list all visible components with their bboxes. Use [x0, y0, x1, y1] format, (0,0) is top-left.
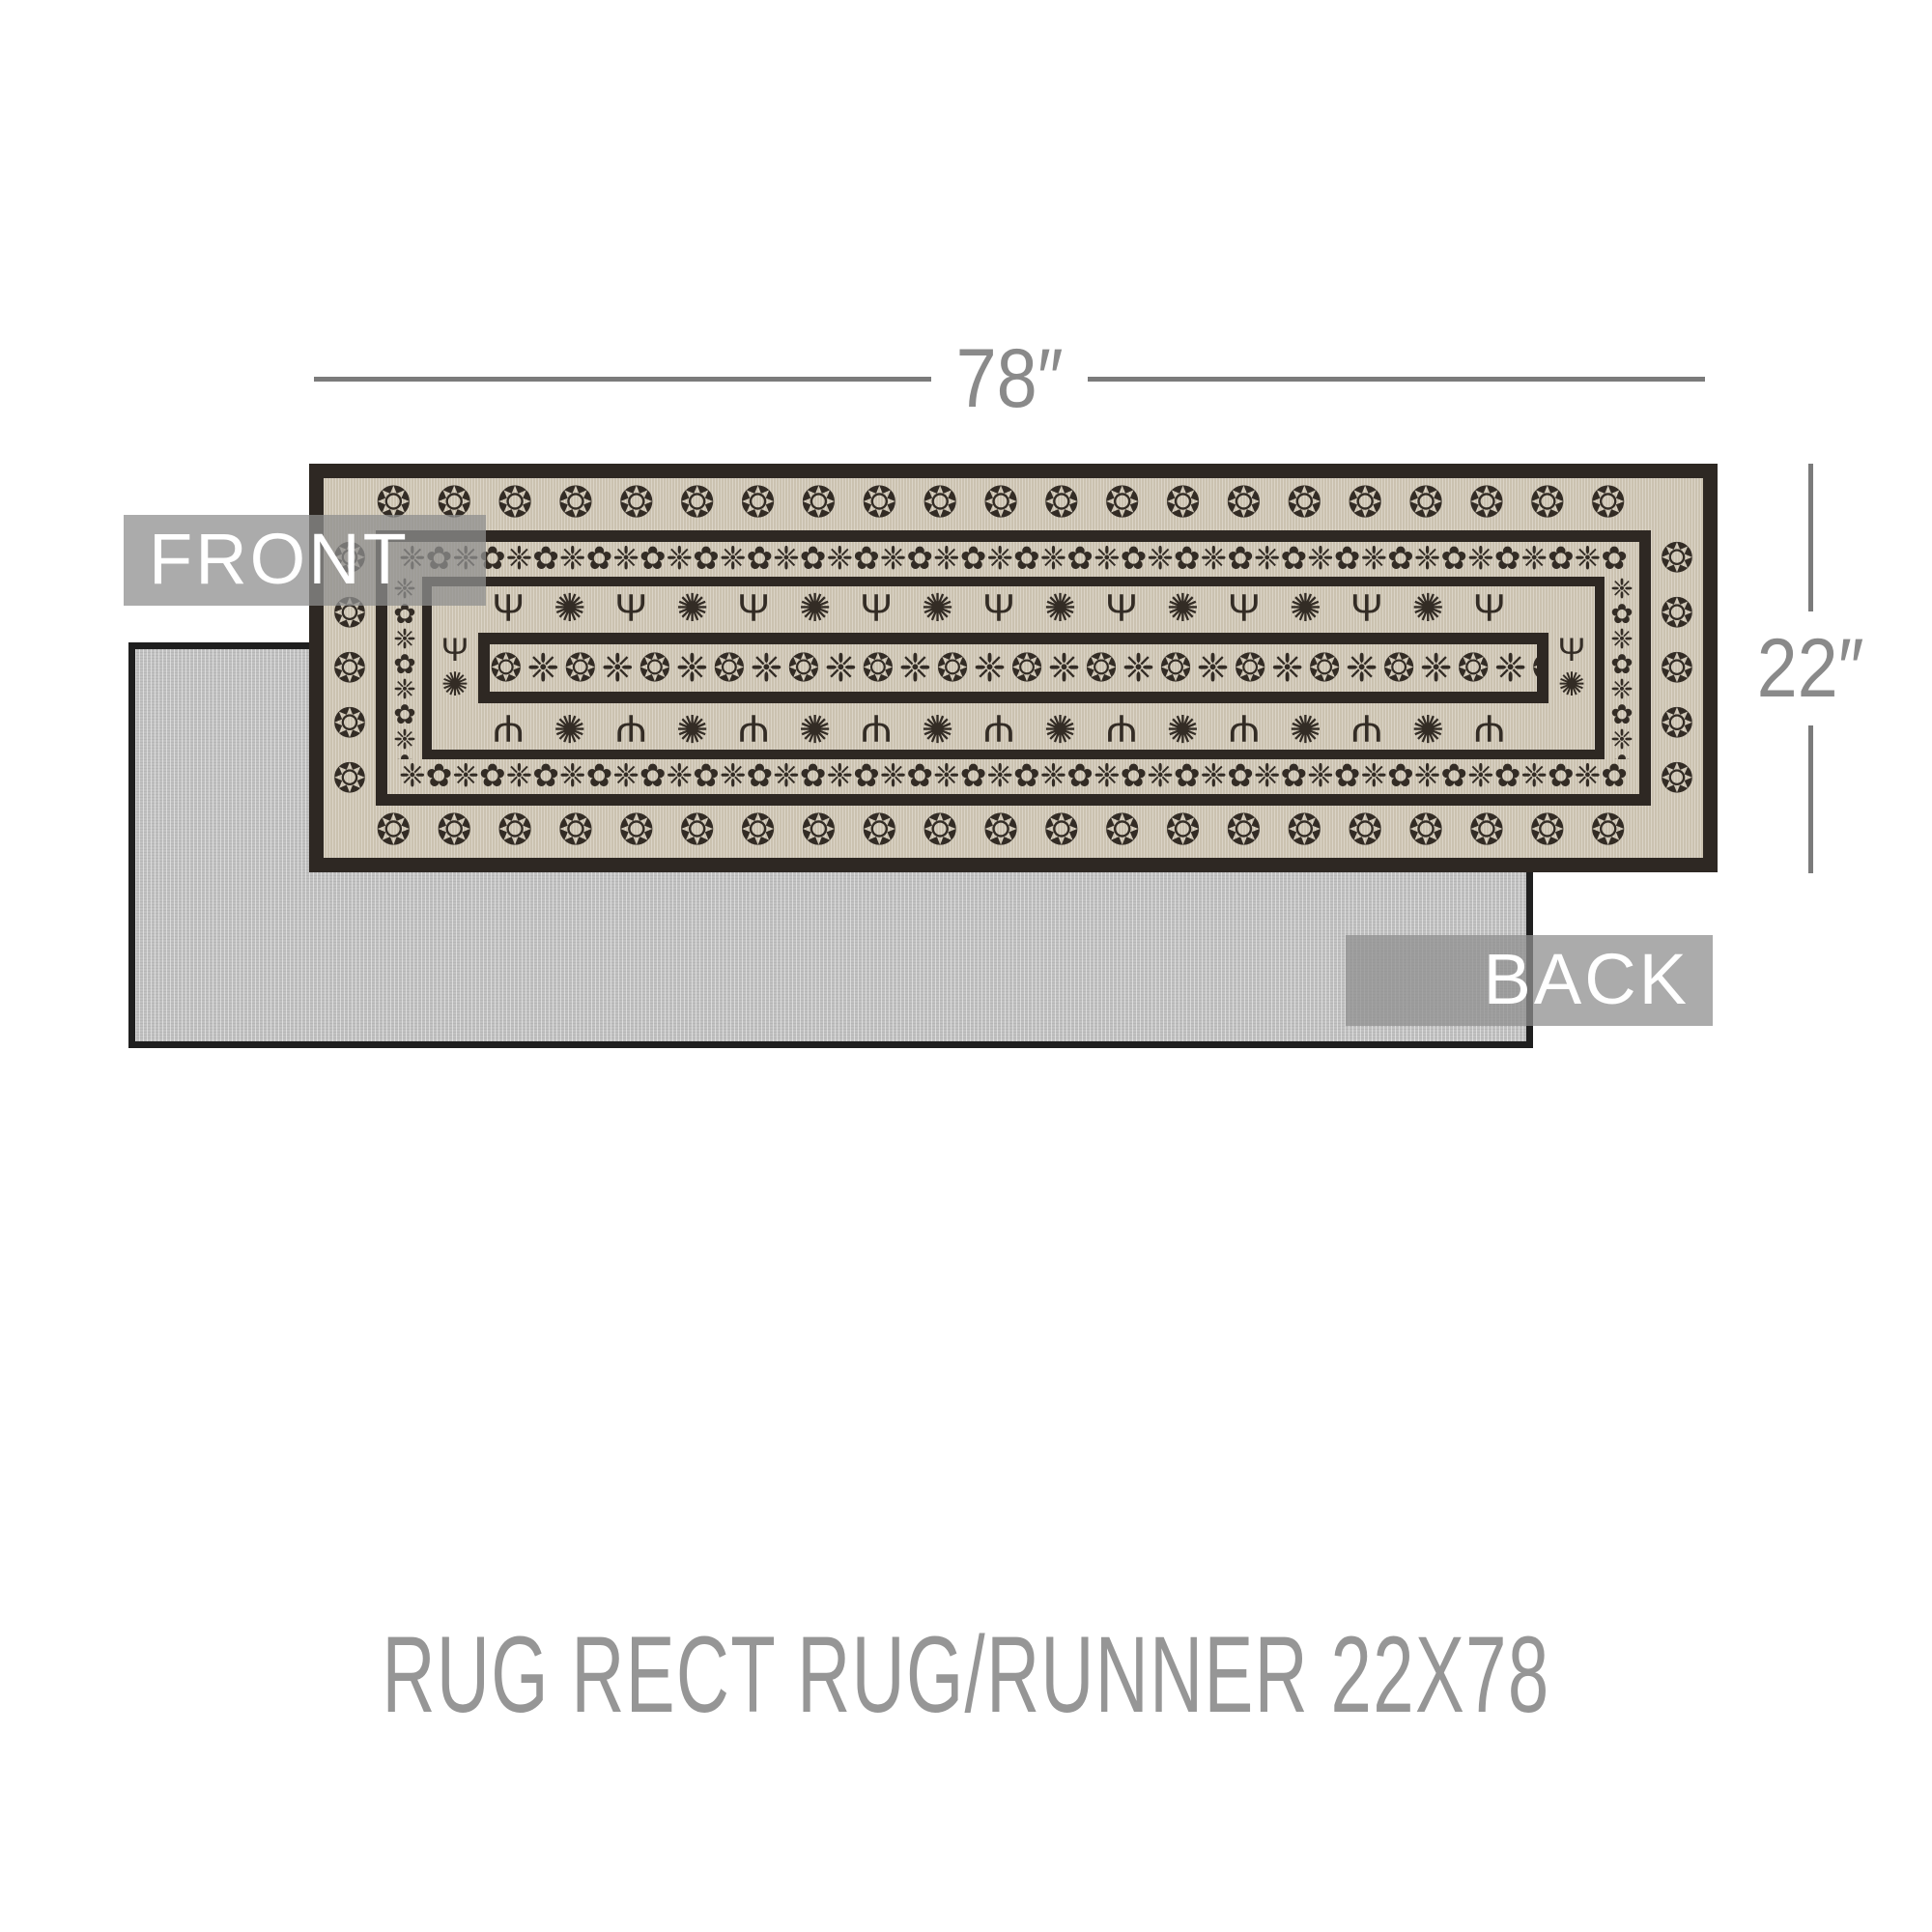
width-dimension-label: 78″: [956, 337, 1064, 420]
medallion-row-bottom: ❂❂❂❂❂❂❂❂❂❂❂❂❂❂❂❂❂❂❂❂❂: [324, 806, 1703, 858]
height-dimension-line-bottom: [1808, 725, 1813, 873]
product-caption-text: RUG RECT RUG/RUNNER 22X78: [382, 1615, 1549, 1734]
motif-band: Ψ✺Ψ✺Ψ✺Ψ✺Ψ✺Ψ✺Ψ✺Ψ✺Ψ Ψ✺Ψ✺Ψ✺Ψ✺Ψ✺Ψ✺Ψ✺Ψ✺Ψ Ψ ✺ …: [432, 586, 1595, 750]
lace-row-top: ❈✿❈✿❈✿❈✿❈✿❈✿❈✿❈✿❈✿❈✿❈✿❈✿❈✿❈✿❈✿❈✿❈✿❈✿❈✿❈✿…: [387, 542, 1639, 577]
rug-front-view: ❂❂❂❂❂❂❂❂❂❂❂❂❂❂❂❂❂❂❂❂❂ ❂❂❂❂❂❂❂❂❂❂❂❂❂❂❂❂❂❂…: [309, 464, 1718, 872]
height-dimension-label: 22″: [1757, 627, 1864, 710]
back-label: BACK: [1483, 939, 1690, 1019]
width-dimension: 78″: [314, 339, 1705, 418]
product-caption: RUG RECT RUG/RUNNER 22X78: [0, 1615, 1932, 1734]
inner-frame-1: ❈✿❈✿❈✿❈✿❈✿❈✿❈✿❈✿❈✿❈✿❈✿❈✿❈✿❈✿❈✿❈✿❈✿❈✿❈✿❈✿…: [376, 530, 1651, 806]
lace-column-right: ❈ ✿ ❈ ✿ ❈ ✿ ❈ ✿: [1605, 577, 1639, 759]
height-dimension: 22″: [1771, 464, 1850, 873]
candelabra-rosette-row-top: Ψ✺Ψ✺Ψ✺Ψ✺Ψ✺Ψ✺Ψ✺Ψ✺Ψ: [432, 586, 1595, 633]
product-dimension-diagram: 78″ 22″ ❂❂❂❂❂❂❂❂❂❂❂❂❂❂❂❂❂❂❂❂❂ ❂❂❂❂❂❂❂❂❂❂…: [0, 0, 1932, 1932]
medallion-column-right: ❂ ❂ ❂ ❂ ❂: [1651, 530, 1703, 806]
back-label-badge: BACK: [1346, 935, 1713, 1026]
willow-rosette-row-bottom: Ψ✺Ψ✺Ψ✺Ψ✺Ψ✺Ψ✺Ψ✺Ψ✺Ψ: [432, 703, 1595, 750]
lace-band: ❈✿❈✿❈✿❈✿❈✿❈✿❈✿❈✿❈✿❈✿❈✿❈✿❈✿❈✿❈✿❈✿❈✿❈✿❈✿❈✿…: [387, 542, 1639, 794]
inner-frame-3: ❂❈❂❈❂❈❂❈❂❈❂❈❂❈❂❈❂❈❂❈❂❈❂❈❂❈❂❈❂❈: [478, 633, 1548, 703]
outer-medallion-band: ❂❂❂❂❂❂❂❂❂❂❂❂❂❂❂❂❂❂❂❂❂ ❂❂❂❂❂❂❂❂❂❂❂❂❂❂❂❂❂❂…: [324, 478, 1703, 858]
center-medallion-panel: ❂❈❂❈❂❈❂❈❂❈❂❈❂❈❂❈❂❈❂❈❂❈❂❈❂❈❂❈❂❈: [490, 644, 1537, 692]
inner-frame-2: Ψ✺Ψ✺Ψ✺Ψ✺Ψ✺Ψ✺Ψ✺Ψ✺Ψ Ψ✺Ψ✺Ψ✺Ψ✺Ψ✺Ψ✺Ψ✺Ψ✺Ψ Ψ ✺ …: [422, 577, 1605, 759]
medallion-row-top: ❂❂❂❂❂❂❂❂❂❂❂❂❂❂❂❂❂❂❂❂❂: [324, 478, 1703, 530]
lace-row-bottom: ❈✿❈✿❈✿❈✿❈✿❈✿❈✿❈✿❈✿❈✿❈✿❈✿❈✿❈✿❈✿❈✿❈✿❈✿❈✿❈✿…: [387, 759, 1639, 794]
motif-column-left: Ψ ✺: [432, 633, 478, 703]
motif-column-right: Ψ ✺: [1548, 633, 1595, 703]
front-label: FRONT: [149, 519, 410, 599]
front-label-badge: FRONT: [124, 515, 486, 606]
height-dimension-line-top: [1808, 464, 1813, 611]
width-dimension-line-right: [1088, 377, 1705, 382]
width-dimension-line-left: [314, 377, 931, 382]
